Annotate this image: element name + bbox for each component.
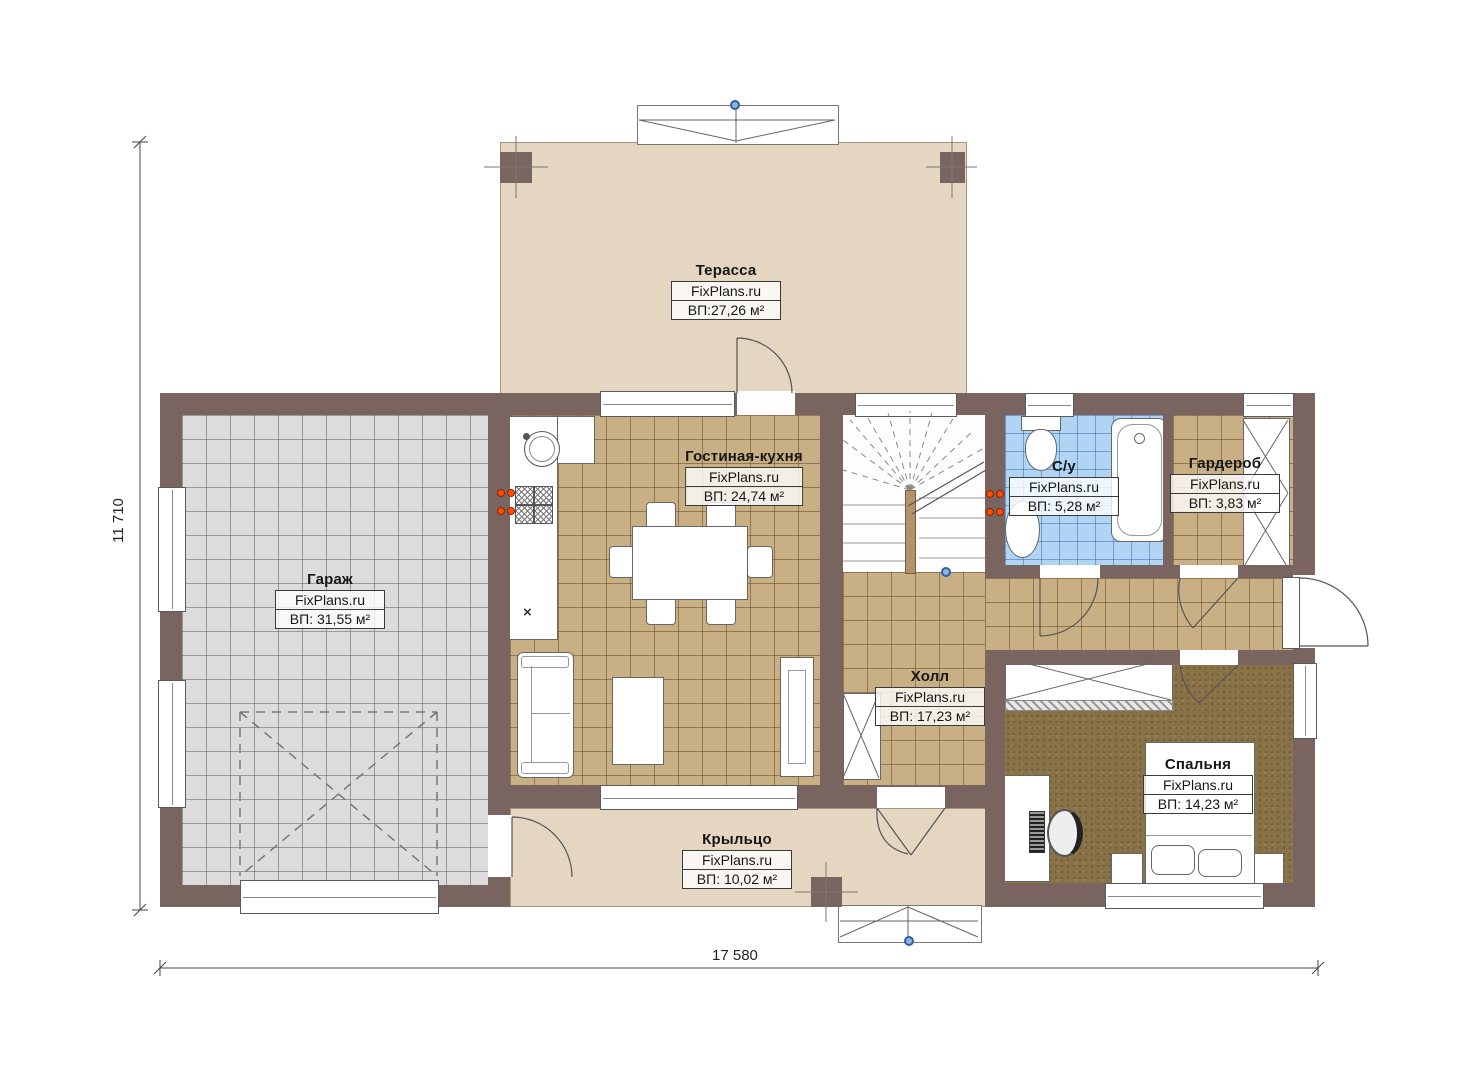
room-watermark-terrace: FixPlans.ru	[671, 281, 781, 301]
terrace-steps	[637, 105, 839, 145]
room-area-bathroom: ВП: 5,28 м²	[1009, 497, 1119, 516]
counter-x-mark: ×	[523, 604, 532, 621]
sofa-back-line	[531, 666, 532, 762]
room-label-bathroom: С/у FixPlans.ru ВП: 5,28 м²	[1009, 458, 1119, 516]
room-area-porch: ВП: 10,02 м²	[682, 870, 792, 889]
terrace-pillar-left	[500, 152, 532, 183]
coffee-table	[612, 677, 664, 765]
room-area-garage: ВП: 31,55 м²	[275, 610, 385, 629]
chair	[747, 546, 773, 578]
wall-right	[1293, 393, 1315, 907]
room-area-hall: ВП: 17,23 м²	[875, 707, 985, 726]
stove-burner-1	[515, 486, 534, 505]
wall-living-stairs	[820, 393, 843, 790]
chair	[646, 597, 676, 625]
room-title-bedroom: Спальня	[1143, 756, 1253, 773]
wall-bathroom-left	[985, 393, 1005, 575]
room-label-living-kitchen: Гостиная-кухня FixPlans.ru ВП: 24,74 м²	[685, 448, 803, 506]
wall-under-bathroom	[985, 565, 1315, 578]
room-title-living-kitchen: Гостиная-кухня	[685, 448, 803, 465]
radiator-kitchen-1	[497, 489, 515, 497]
room-watermark-wardrobe: FixPlans.ru	[1170, 474, 1280, 494]
radiator-bathroom-1	[986, 490, 1004, 498]
nightstand-left	[1111, 853, 1143, 884]
window-wardrobe-top	[1243, 393, 1294, 417]
radiator-bathroom-2	[986, 508, 1004, 516]
sofa-armrest-bottom	[521, 762, 569, 774]
nightstand-right	[1254, 853, 1284, 884]
stairs-node	[941, 567, 951, 577]
door-opening-bathroom	[1040, 565, 1100, 578]
room-title-bathroom: С/у	[1009, 458, 1119, 475]
door-leaf-hall-exterior	[1282, 577, 1300, 649]
kitchen-faucet	[523, 433, 530, 440]
room-watermark-porch: FixPlans.ru	[682, 850, 792, 870]
bathtub-drain	[1134, 433, 1145, 444]
room-title-wardrobe: Гардероб	[1170, 455, 1280, 472]
terrace-steps-node	[730, 100, 740, 110]
stove-burner-2	[534, 486, 553, 505]
room-watermark-living-kitchen: FixPlans.ru	[685, 467, 803, 487]
wall-left	[160, 393, 182, 907]
door-opening-main-entrance	[877, 787, 945, 808]
tv-panel	[788, 670, 806, 764]
room-label-garage: Гараж FixPlans.ru ВП: 31,55 м²	[275, 571, 385, 629]
room-watermark-garage: FixPlans.ru	[275, 590, 385, 610]
dimension-height: 11 710	[110, 498, 127, 543]
stairs-newel	[905, 490, 916, 574]
room-title-terrace: Терасса	[671, 262, 781, 279]
door-opening-wardrobe	[1180, 565, 1238, 578]
wall-bedroom-top	[985, 650, 1315, 665]
room-watermark-hall: FixPlans.ru	[875, 687, 985, 707]
window-bedroom-right	[1293, 663, 1317, 739]
door-opening-terrace	[737, 391, 795, 415]
bed-pillow-left	[1151, 845, 1195, 875]
porch-pillar	[811, 877, 842, 907]
window-garage-left-upper	[158, 487, 186, 612]
window-kitchen-terrace	[600, 391, 735, 417]
kitchen-sink-basin	[529, 436, 555, 462]
window-bathroom-top	[1025, 393, 1074, 417]
room-watermark-bathroom: FixPlans.ru	[1009, 477, 1119, 497]
desk-keyboard	[1029, 811, 1045, 853]
garage-door	[240, 880, 439, 914]
room-title-hall: Холл	[875, 668, 985, 685]
porch-steps-node	[904, 936, 914, 946]
room-label-terrace: Терасса FixPlans.ru ВП:27,26 м²	[671, 262, 781, 320]
room-area-bedroom: ВП: 14,23 м²	[1143, 795, 1253, 814]
room-title-porch: Крыльцо	[682, 831, 792, 848]
window-stairs-top	[855, 393, 957, 417]
room-label-wardrobe: Гардероб FixPlans.ru ВП: 3,83 м²	[1170, 455, 1280, 513]
room-watermark-bedroom: FixPlans.ru	[1143, 775, 1253, 795]
stove-burner-4	[534, 505, 553, 524]
room-label-porch: Крыльцо FixPlans.ru ВП: 10,02 м²	[682, 831, 792, 889]
room-label-hall: Холл FixPlans.ru ВП: 17,23 м²	[875, 668, 985, 726]
room-area-wardrobe: ВП: 3,83 м²	[1170, 494, 1280, 513]
wall-garage-right-lower	[488, 877, 510, 907]
window-living-bottom	[600, 785, 798, 810]
bed-pillow-right	[1198, 849, 1242, 877]
stove-burner-3	[515, 505, 534, 524]
sofa	[517, 652, 574, 778]
dining-table	[632, 526, 748, 600]
floor-plan-canvas: ×	[0, 0, 1474, 1080]
window-bedroom-bottom	[1105, 883, 1264, 909]
window-garage-left-lower	[158, 680, 186, 808]
room-area-terrace: ВП:27,26 м²	[671, 301, 781, 320]
wall-bedroom-left	[985, 650, 1005, 907]
desk-chair	[1047, 809, 1083, 857]
radiator-kitchen-2	[497, 507, 515, 515]
hall-corridor-floor	[985, 578, 1293, 650]
room-label-bedroom: Спальня FixPlans.ru ВП: 14,23 м²	[1143, 756, 1253, 814]
sofa-armrest-top	[521, 656, 569, 668]
wall-garage-right-upper	[488, 393, 510, 815]
chair	[706, 597, 736, 625]
room-title-garage: Гараж	[275, 571, 385, 588]
bedroom-wardrobe-hatch	[1005, 700, 1173, 711]
garage-floor	[182, 415, 488, 885]
room-area-living-kitchen: ВП: 24,74 м²	[685, 487, 803, 506]
terrace-pillar-right	[940, 152, 965, 183]
door-opening-bedroom	[1180, 650, 1238, 665]
bed-blanket-line	[1146, 835, 1252, 836]
dimension-width: 17 580	[712, 947, 758, 964]
sofa-cushion-line	[532, 713, 570, 714]
door-opening-garage-porch	[488, 815, 512, 877]
